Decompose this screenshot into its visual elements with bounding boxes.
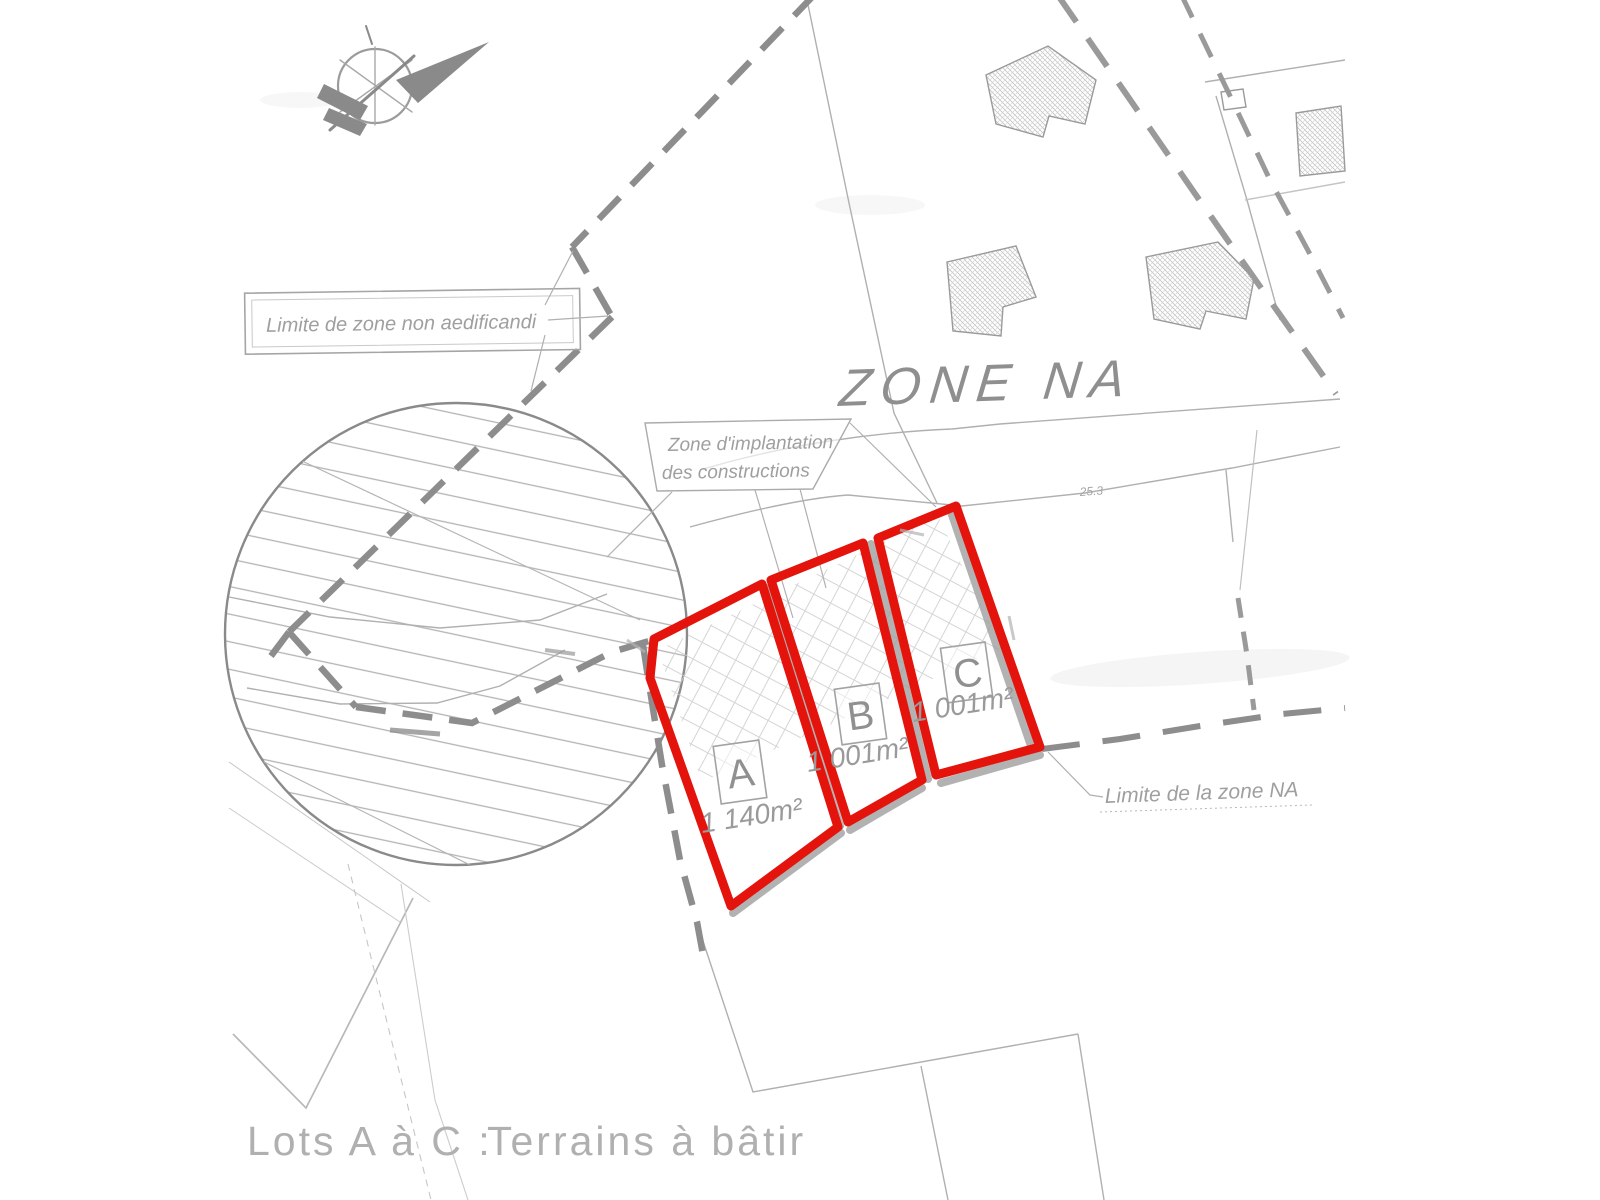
lot-a-area: 1 140m² — [698, 792, 806, 839]
building — [1296, 106, 1345, 176]
north-compass-icon — [317, 26, 489, 136]
zone-na-limit-annotation: Limite de la zone NA — [1048, 752, 1312, 812]
dimension-label: 25.3 — [1078, 483, 1104, 499]
implantation-label-line2: des constructions — [662, 460, 811, 484]
zone-na-label: ZONE NA — [835, 350, 1137, 418]
lot-c-area: 1 001m² — [909, 681, 1017, 728]
building — [986, 46, 1096, 137]
building — [947, 246, 1036, 336]
caption-text: Terrains à bâtir — [487, 1118, 806, 1164]
buildings — [947, 46, 1345, 336]
limit-non-aedificandi-box: Limite de zone non aedificandi — [245, 288, 581, 354]
implantation-label-line1: Zone d'implantation — [667, 432, 834, 456]
building-small — [1221, 89, 1246, 110]
limit-non-aedificandi-label: Limite de zone non aedificandi — [266, 311, 537, 337]
implantation-box: Zone d'implantation des constructions — [645, 419, 851, 491]
scanned-subdivision-plan: Limite de zone non aedificandi ZONE NA Z… — [0, 0, 1600, 1200]
zone-na-limit-dashed — [1042, 708, 1345, 749]
zone-na-limit-label: Limite de la zone NA — [1104, 778, 1298, 808]
building — [1146, 242, 1254, 329]
caption-prefix: Lots A à C : — [247, 1118, 493, 1164]
caption: Lots A à C : Terrains à bâtir — [247, 1118, 806, 1164]
plan-drawing: Limite de zone non aedificandi ZONE NA Z… — [0, 0, 1600, 1200]
